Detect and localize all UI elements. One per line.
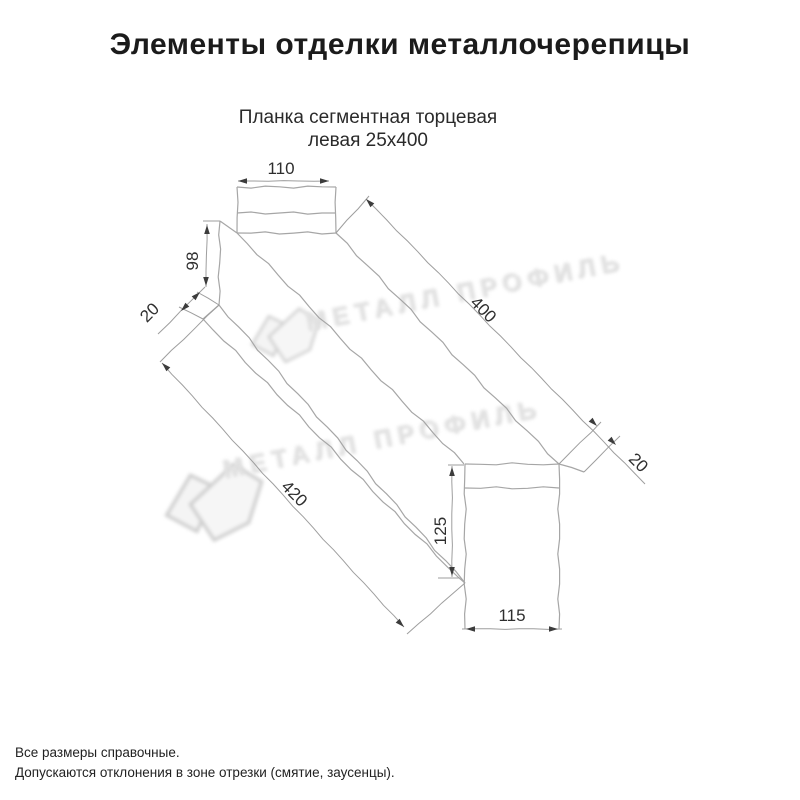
dim-end-width-label: 115 (498, 606, 525, 626)
footnote-line-1: Все размеры справочные. (15, 743, 395, 763)
footnote: Все размеры справочные. Допускаются откл… (15, 743, 395, 783)
dim-top-width-label: 110 (267, 159, 294, 179)
product-drawing-page: Элементы отделки металлочерепицы Планка … (0, 0, 800, 800)
dim-end-height-label: 125 (431, 517, 451, 545)
footnote-line-2: Допускаются отклонения в зоне отрезки (с… (15, 763, 395, 783)
technical-drawing (0, 0, 800, 800)
dim-wall-height-label: 98 (183, 252, 203, 271)
